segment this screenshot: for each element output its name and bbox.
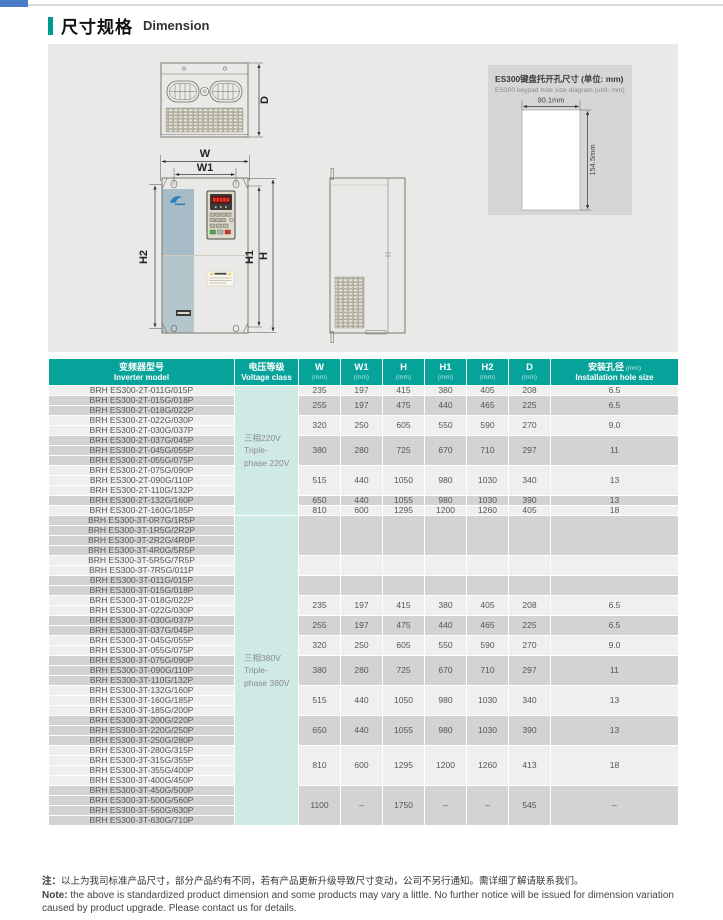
dimension-cell: 710: [467, 436, 509, 466]
dimension-cell: 320: [299, 416, 341, 436]
model-cell: BRH ES300-2T-160G/185P: [49, 506, 235, 516]
table-row: BRH ES300-3T-0R7G/1R5P三相380VTriple-phase…: [49, 516, 679, 526]
model-cell: BRH ES300-3T-280G/315P: [49, 746, 235, 756]
dimension-cell: [341, 576, 383, 596]
model-cell: BRH ES300-3T-220G/250P: [49, 726, 235, 736]
model-cell: BRH ES300-2T-045G/055P: [49, 446, 235, 456]
dimension-cell: 475: [383, 616, 425, 636]
side-vent-grille: [335, 277, 364, 328]
run-button: [210, 230, 216, 234]
dimension-cell: 9.0: [551, 416, 679, 436]
table-row: BRH ES300-3T-030G/037P255197475440465225…: [49, 616, 679, 626]
dimension-cell: 208: [509, 596, 551, 616]
note-zh: 注：以上为我司标准产品尺寸，部分产品约有不同，若有产品更新升级导致尺寸变动，公司…: [42, 876, 696, 888]
column-header: 安装孔径 (mm)Installation hole size: [551, 359, 679, 386]
dimension-cell: 980: [425, 496, 467, 506]
dimension-cell: [383, 576, 425, 596]
dimension-cell: –: [467, 786, 509, 826]
dimension-cell: 605: [383, 416, 425, 436]
dimension-cell: 1030: [467, 716, 509, 746]
dimension-cell: 380: [425, 596, 467, 616]
vent-grille: [166, 108, 243, 132]
dimension-cell: 1055: [383, 496, 425, 506]
model-cell: BRH ES300-3T-022G/030P: [49, 606, 235, 616]
model-cell: BRH ES300-3T-450G/500P: [49, 786, 235, 796]
dimension-cell: [383, 556, 425, 576]
column-header: H1(mm): [425, 359, 467, 386]
dimension-cell: 280: [341, 656, 383, 686]
dimension-cell: [509, 556, 551, 576]
page-top-bar: [0, 0, 723, 8]
dimension-cell: 413: [509, 746, 551, 786]
model-cell: BRH ES300-3T-630G/710P: [49, 816, 235, 826]
dimension-cell: 6.5: [551, 386, 679, 396]
dimension-cell: 1100: [299, 786, 341, 826]
dimension-cell: 550: [425, 416, 467, 436]
fan-grille-right: [210, 81, 242, 102]
table-row: BRH ES300-3T-132G/160P515440105098010303…: [49, 686, 679, 696]
dimension-cell: 6.5: [551, 596, 679, 616]
dimension-cell: 605: [383, 636, 425, 656]
dimension-cell: 197: [341, 616, 383, 636]
dimension-cell: 380: [299, 656, 341, 686]
dimension-cell: [299, 516, 341, 556]
dimension-cell: 725: [383, 436, 425, 466]
model-cell: BRH ES300-3T-045G/055P: [49, 636, 235, 646]
dimension-cell: 1295: [383, 746, 425, 786]
dimension-cell: 225: [509, 396, 551, 416]
table-row: BRH ES300-3T-280G/315P810600129512001260…: [49, 746, 679, 756]
table-row: BRH ES300-2T-160G/185P810600129512001260…: [49, 506, 679, 516]
keypad-hole-height-label: 154.5mm: [588, 144, 597, 175]
dimension-cell: 390: [509, 496, 551, 506]
dimension-cell: 13: [551, 716, 679, 746]
keypad: [207, 191, 235, 239]
table-row: BRH ES300-3T-075G/090P380280725670710297…: [49, 656, 679, 666]
dimension-cell: [467, 556, 509, 576]
table-row: BRH ES300-3T-5R5G/7R5P: [49, 556, 679, 566]
model-cell: BRH ES300-3T-018G/022P: [49, 596, 235, 606]
dimension-cell: 600: [341, 506, 383, 516]
dimension-cell: 405: [467, 596, 509, 616]
dim-label-h2: H2: [138, 250, 150, 264]
table-row: BRH ES300-3T-045G/055P320250605550590270…: [49, 636, 679, 646]
dimension-diagram-panel: D W W1: [48, 44, 678, 352]
dimension-cell: 270: [509, 416, 551, 436]
model-cell: BRH ES300-2T-030G/037P: [49, 426, 235, 436]
screw-icon: [182, 67, 185, 70]
note-en-prefix: Note:: [42, 890, 68, 901]
dimension-cell: 1030: [467, 466, 509, 496]
dimension-cell: [509, 516, 551, 556]
dimension-cell: 465: [467, 616, 509, 636]
dimension-cell: 1260: [467, 506, 509, 516]
dimension-cell: [425, 556, 467, 576]
dimension-cell: 1030: [467, 496, 509, 506]
model-cell: BRH ES300-3T-160G/185P: [49, 696, 235, 706]
dimension-cell: 6.5: [551, 396, 679, 416]
dimension-cell: 545: [509, 786, 551, 826]
dimension-cell: 590: [467, 416, 509, 436]
model-cell: BRH ES300-2T-075G/090P: [49, 466, 235, 476]
dimension-cell: 13: [551, 686, 679, 716]
dimension-cell: 235: [299, 596, 341, 616]
voltage-class-cell: 三相380VTriple-phase 380V: [235, 516, 299, 826]
dimension-cell: 380: [425, 386, 467, 396]
model-cell: BRH ES300-3T-2R2G/4R0P: [49, 536, 235, 546]
dimension-cell: 1260: [467, 746, 509, 786]
fan-grille-left: [167, 81, 199, 102]
table-row: BRH ES300-2T-011G/015P三相220VTriple-phase…: [49, 386, 679, 396]
dimension-cell: 197: [341, 396, 383, 416]
dimension-cell: 1050: [383, 466, 425, 496]
model-cell: BRH ES300-3T-4R0G/5R5P: [49, 546, 235, 556]
table-row: BRH ES300-2T-015G/018P255197475440465225…: [49, 396, 679, 406]
column-header: D(mm): [509, 359, 551, 386]
model-cell: BRH ES300-2T-090G/110P: [49, 476, 235, 486]
dim-label-d: D: [259, 96, 271, 104]
table-header-row: 变频器型号Inverter model电压等级Voltage classW(mm…: [49, 359, 679, 386]
dimension-cell: 600: [341, 746, 383, 786]
dimension-cell: 13: [551, 466, 679, 496]
column-header: 电压等级Voltage class: [235, 359, 299, 386]
dimension-cell: 810: [299, 746, 341, 786]
dimension-cell: 670: [425, 436, 467, 466]
dimension-cell: 255: [299, 396, 341, 416]
dimension-cell: 1295: [383, 506, 425, 516]
table-body: BRH ES300-2T-011G/015P三相220VTriple-phase…: [49, 386, 679, 826]
dimension-cell: 340: [509, 466, 551, 496]
page-title-en: Dimension: [143, 18, 209, 33]
model-cell: BRH ES300-2T-037G/045P: [49, 436, 235, 446]
top-view-drawing: D: [161, 63, 271, 137]
dimension-cell: 515: [299, 466, 341, 496]
note-zh-prefix: 注：: [42, 876, 61, 887]
dimension-cell: 710: [467, 656, 509, 686]
dimension-cell: [341, 516, 383, 556]
model-cell: BRH ES300-2T-055G/075P: [49, 456, 235, 466]
dimension-cell: 320: [299, 636, 341, 656]
dimension-cell: 280: [341, 436, 383, 466]
table-row: BRH ES300-3T-011G/015P: [49, 576, 679, 586]
model-cell: BRH ES300-3T-132G/160P: [49, 686, 235, 696]
dimension-cell: 270: [509, 636, 551, 656]
dimension-cell: 255: [299, 616, 341, 636]
keypad-box-title-zh: ES300键盘托开孔尺寸 (单位: mm): [495, 74, 624, 84]
dimension-cell: [425, 516, 467, 556]
dimension-cell: [467, 576, 509, 596]
dimension-cell: 13: [551, 496, 679, 506]
model-cell: BRH ES300-3T-030G/037P: [49, 616, 235, 626]
dimension-cell: 208: [509, 386, 551, 396]
dimension-cell: 440: [341, 466, 383, 496]
dimension-cell: 1030: [467, 686, 509, 716]
model-cell: BRH ES300-3T-015G/018P: [49, 586, 235, 596]
dimension-cell: 18: [551, 506, 679, 516]
model-cell: BRH ES300-3T-7R5G/011P: [49, 566, 235, 576]
model-cell: BRH ES300-2T-011G/015P: [49, 386, 235, 396]
model-cell: BRH ES300-3T-075G/090P: [49, 656, 235, 666]
dimension-cell: [425, 576, 467, 596]
model-cell: BRH ES300-2T-110G/132P: [49, 486, 235, 496]
dimension-cell: 225: [509, 616, 551, 636]
model-cell: BRH ES300-2T-015G/018P: [49, 396, 235, 406]
dimension-cell: 550: [425, 636, 467, 656]
table-row: BRH ES300-3T-018G/022P235197415380405208…: [49, 596, 679, 606]
dimension-cell: [341, 556, 383, 576]
table-row: BRH ES300-3T-450G/500P1100–1750––545–: [49, 786, 679, 796]
dimension-cell: 440: [341, 496, 383, 506]
dimension-cell: 980: [425, 466, 467, 496]
dimension-cell: 650: [299, 496, 341, 506]
model-cell: BRH ES300-3T-055G/075P: [49, 646, 235, 656]
table-row: BRH ES300-2T-132G/160P650440105598010303…: [49, 496, 679, 506]
dimension-cell: 1055: [383, 716, 425, 746]
dimension-cell: 415: [383, 596, 425, 616]
dimension-cell: [383, 516, 425, 556]
warning-label: [207, 271, 234, 286]
model-cell: BRH ES300-3T-011G/015P: [49, 576, 235, 586]
center-knob: [200, 87, 208, 95]
dimension-cell: 440: [425, 616, 467, 636]
table-row: BRH ES300-2T-037G/045P380280725670710297…: [49, 436, 679, 446]
dimension-cell: [299, 556, 341, 576]
dimension-cell: 810: [299, 506, 341, 516]
keypad-hole-diagram: ES300键盘托开孔尺寸 (单位: mm) ES300 keypad hole …: [488, 65, 632, 215]
dimension-cell: 590: [467, 636, 509, 656]
dimension-cell: 405: [509, 506, 551, 516]
screw-icon: [223, 67, 226, 70]
front-view-drawing: W W1: [138, 148, 276, 333]
dimension-cell: –: [341, 786, 383, 826]
dimension-cell: 390: [509, 716, 551, 746]
dim-label-h1: H1: [244, 250, 256, 264]
model-cell: BRH ES300-3T-110G/132P: [49, 676, 235, 686]
model-cell: BRH ES300-3T-185G/200P: [49, 706, 235, 716]
dimension-cell: 1200: [425, 506, 467, 516]
dim-label-h: H: [258, 252, 270, 260]
model-cell: BRH ES300-3T-5R5G/7R5P: [49, 556, 235, 566]
top-divider-line: [0, 4, 723, 6]
title-accent-bar: [48, 17, 53, 35]
dimension-cell: 405: [467, 386, 509, 396]
model-cell: BRH ES300-2T-022G/030P: [49, 416, 235, 426]
keypad-box-title-en: ES300 keypad hole size diagram (unit: mm…: [495, 87, 625, 94]
dim-label-w: W: [200, 148, 211, 160]
dimension-cell: –: [551, 786, 679, 826]
model-cell: BRH ES300-3T-250G/280P: [49, 736, 235, 746]
keypad-hole-outline: [522, 110, 580, 210]
dimension-cell: 670: [425, 656, 467, 686]
dimension-cell: [467, 516, 509, 556]
stop-button: [225, 230, 231, 234]
section-title: 尺寸规格 Dimension: [48, 13, 209, 38]
dimension-table-wrap: 变频器型号Inverter model电压等级Voltage classW(mm…: [48, 358, 678, 826]
page-title-zh: 尺寸规格: [61, 13, 133, 38]
dimension-cell: 11: [551, 656, 679, 686]
keypad-hole-width-label: 90.1mm: [537, 96, 564, 105]
model-cell: BRH ES300-3T-200G/220P: [49, 716, 235, 726]
column-header: 变频器型号Inverter model: [49, 359, 235, 386]
model-cell: BRH ES300-3T-315G/355P: [49, 756, 235, 766]
side-view-drawing: [330, 169, 405, 343]
dimension-diagram: D W W1: [48, 44, 678, 352]
model-cell: BRH ES300-3T-400G/450P: [49, 776, 235, 786]
model-cell: BRH ES300-3T-560G/630P: [49, 806, 235, 816]
column-header: H(mm): [383, 359, 425, 386]
dimension-cell: 1050: [383, 686, 425, 716]
column-header: W1(mm): [341, 359, 383, 386]
table-row: BRH ES300-2T-075G/090P515440105098010303…: [49, 466, 679, 476]
model-cell: BRH ES300-2T-018G/022P: [49, 406, 235, 416]
model-cell: BRH ES300-3T-1R5G/2R2P: [49, 526, 235, 536]
dimension-cell: 297: [509, 656, 551, 686]
dimension-cell: 197: [341, 596, 383, 616]
table-row: BRH ES300-3T-200G/220P650440105598010303…: [49, 716, 679, 726]
dimension-cell: [551, 576, 679, 596]
dimension-cell: 340: [509, 686, 551, 716]
dimension-cell: 250: [341, 636, 383, 656]
dimension-cell: 980: [425, 686, 467, 716]
dimension-cell: 9.0: [551, 636, 679, 656]
dimension-cell: 980: [425, 716, 467, 746]
dimension-cell: 11: [551, 436, 679, 466]
model-cell: BRH ES300-3T-0R7G/1R5P: [49, 516, 235, 526]
model-cell: BRH ES300-3T-355G/400P: [49, 766, 235, 776]
dimension-cell: 197: [341, 386, 383, 396]
dimension-cell: [551, 516, 679, 556]
dimension-cell: 1750: [383, 786, 425, 826]
note-en: Note: the above is standardized product …: [42, 889, 696, 915]
dimension-cell: 465: [467, 396, 509, 416]
dimension-cell: 235: [299, 386, 341, 396]
dimension-cell: –: [425, 786, 467, 826]
dimension-cell: 415: [383, 386, 425, 396]
voltage-class-cell: 三相220VTriple-phase 220V: [235, 386, 299, 516]
dimension-cell: 18: [551, 746, 679, 786]
model-cell: BRH ES300-2T-132G/160P: [49, 496, 235, 506]
dimension-cell: [299, 576, 341, 596]
footer-notes: 注：以上为我司标准产品尺寸，部分产品约有不同，若有产品更新升级导致尺寸变动，公司…: [42, 876, 696, 915]
dimension-cell: 475: [383, 396, 425, 416]
dimension-cell: 250: [341, 416, 383, 436]
table-row: BRH ES300-2T-022G/030P320250605550590270…: [49, 416, 679, 426]
dimension-cell: [551, 556, 679, 576]
model-cell: BRH ES300-3T-090G/110P: [49, 666, 235, 676]
dimension-cell: [509, 576, 551, 596]
dimension-cell: 440: [425, 396, 467, 416]
dimension-cell: 650: [299, 716, 341, 746]
dimension-cell: 515: [299, 686, 341, 716]
dimension-cell: 440: [341, 716, 383, 746]
column-header: W(mm): [299, 359, 341, 386]
dimension-cell: 1200: [425, 746, 467, 786]
dimension-cell: 380: [299, 436, 341, 466]
dimension-cell: 297: [509, 436, 551, 466]
dim-label-w1: W1: [197, 162, 214, 174]
dimension-cell: 725: [383, 656, 425, 686]
keypad-knob: [230, 218, 234, 222]
model-cell: BRH ES300-3T-037G/045P: [49, 626, 235, 636]
column-header: H2(mm): [467, 359, 509, 386]
top-blue-chip: [0, 0, 28, 7]
dimension-table: 变频器型号Inverter model电压等级Voltage classW(mm…: [48, 358, 679, 826]
dimension-cell: 6.5: [551, 616, 679, 636]
dimension-cell: 440: [341, 686, 383, 716]
model-cell: BRH ES300-3T-500G/560P: [49, 796, 235, 806]
